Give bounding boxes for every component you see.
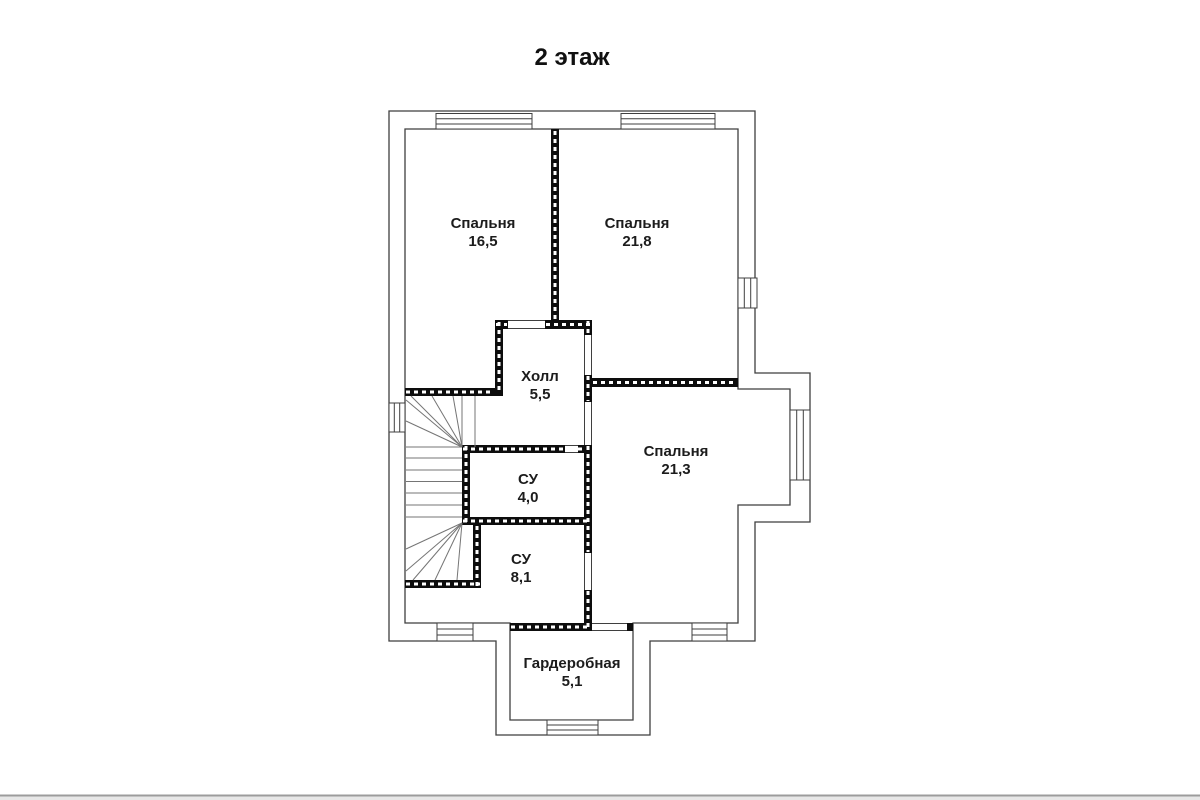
room-label-bathroom-2: СУ 8,1: [511, 551, 532, 586]
window-bottom-left: [437, 623, 473, 641]
window-wardrobe: [547, 720, 598, 735]
room-area: 8,1: [511, 569, 532, 586]
window-bottom-right: [692, 623, 727, 641]
wardrobe-door-post: [627, 623, 633, 631]
page-title: 2 этаж: [534, 44, 610, 71]
room-area: 4,0: [518, 489, 539, 506]
window-left: [389, 403, 405, 432]
room-name: Холл: [521, 368, 559, 385]
window-top-left: [436, 114, 532, 130]
room-area: 21,8: [622, 233, 651, 250]
room-name: СУ: [511, 551, 532, 568]
room-label-bathroom-1: СУ 4,0: [518, 471, 539, 506]
page-bottom-divider: [0, 795, 1200, 800]
window-bay-bedroom3: [790, 410, 810, 480]
room-name: Спальня: [451, 215, 516, 232]
room-area: 16,5: [468, 233, 497, 250]
window-right-bedroom2: [738, 278, 757, 308]
room-name: Гардеробная: [523, 655, 620, 672]
floor-plan-drawing: 2 этаж: [0, 0, 1200, 800]
room-name: СУ: [518, 471, 539, 488]
window-top-right: [621, 114, 715, 130]
room-area: 5,1: [562, 673, 583, 690]
room-name: Спальня: [605, 215, 670, 232]
floor-plan-page: 2 этаж: [0, 0, 1200, 800]
room-name: Спальня: [644, 443, 709, 460]
room-area: 5,5: [530, 386, 551, 403]
room-area: 21,3: [661, 461, 690, 478]
